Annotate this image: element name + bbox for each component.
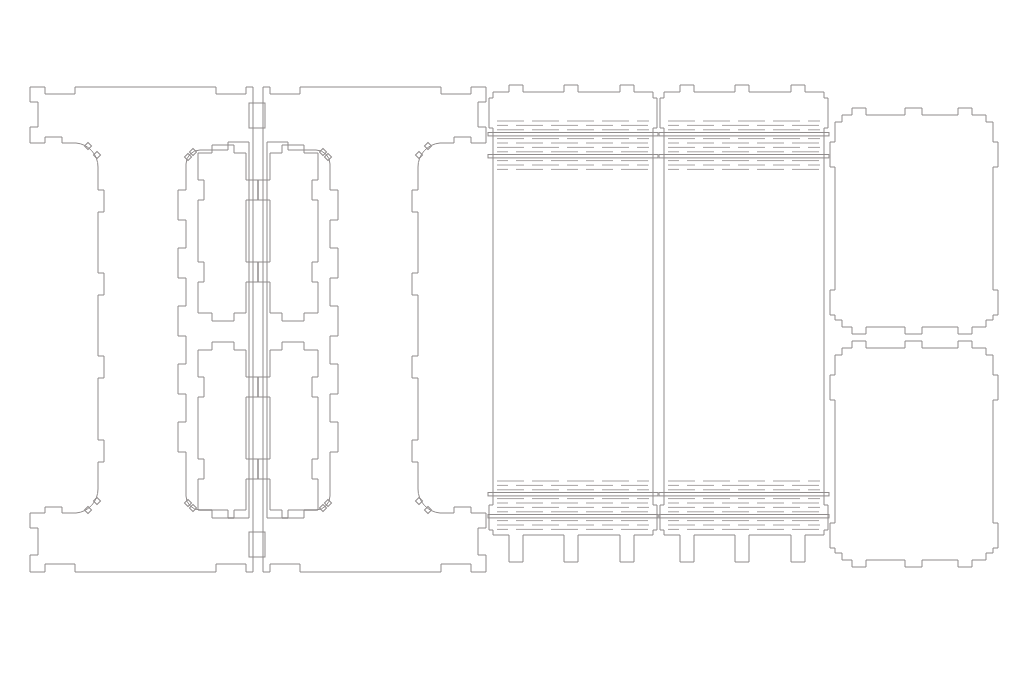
hinge-through-slot [488, 493, 658, 496]
hinge-through-slot [488, 155, 658, 158]
hinge-through-slot [659, 493, 829, 496]
hinge-through-slot [659, 133, 829, 136]
hinge-band-right-bottom [659, 481, 829, 529]
lid-panel-bottom [830, 341, 998, 567]
flex-panel-left-outline [489, 85, 657, 562]
hinge-through-slot [659, 155, 829, 158]
lid-panel-bottom-outline [830, 341, 998, 567]
lid-panel-top [830, 108, 998, 334]
flex-panel-right-outline [660, 85, 828, 562]
side-panel-left-outline [30, 87, 253, 572]
hinge-band-right-top [659, 121, 829, 169]
hinge-through-slot [659, 515, 829, 518]
side-panel-right [263, 87, 486, 572]
laser-cut-template-page [0, 0, 1024, 680]
flex-panel-left [489, 85, 657, 562]
laser-cut-template-svg [0, 0, 1024, 680]
hinge-through-slot [488, 133, 658, 136]
hinge-through-slot [488, 515, 658, 518]
side-panel-left [30, 87, 253, 572]
lid-panel-top-outline [830, 108, 998, 334]
side-panel-right-outline [263, 87, 486, 572]
hinge-band-left-top [488, 121, 658, 169]
hinge-band-left-bottom [488, 481, 658, 529]
flex-panel-right [660, 85, 828, 562]
